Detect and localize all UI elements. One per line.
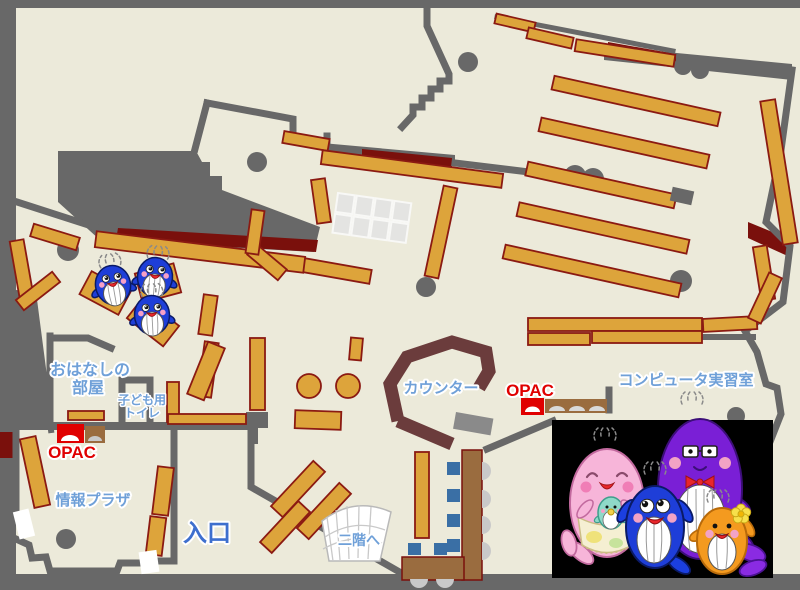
label-entrance: 入口	[183, 520, 231, 547]
label-kids-toilet-line2: トイレ	[124, 406, 160, 420]
label-storytelling-room-line1: おはなしの	[50, 361, 130, 379]
opac-terminal-right	[521, 398, 607, 415]
label-computer-room: コンピュータ実習室	[618, 371, 753, 389]
floor-map-canvas: おはなしの 部屋 子ども用 トイレ OPAC 情報プラザ 入口 二階へ カウンタ…	[0, 0, 800, 590]
library-floor-map: おはなしの 部屋 子ども用 トイレ OPAC 情報プラザ 入口 二階へ カウンタ…	[0, 0, 800, 590]
label-kids-toilet-line1: 子ども用	[118, 393, 166, 407]
label-opac-left: OPAC	[48, 443, 96, 462]
label-info-plaza: 情報プラザ	[55, 491, 130, 509]
label-opac-right: OPAC	[506, 381, 554, 400]
reading-table	[295, 410, 342, 430]
round-table	[297, 374, 321, 398]
label-storytelling-room-line2: 部屋	[72, 378, 104, 397]
round-table	[336, 374, 360, 398]
opac-terminal-left	[57, 424, 105, 443]
label-counter: カウンター	[403, 380, 478, 397]
label-to-second-floor: 二階へ	[338, 532, 380, 548]
